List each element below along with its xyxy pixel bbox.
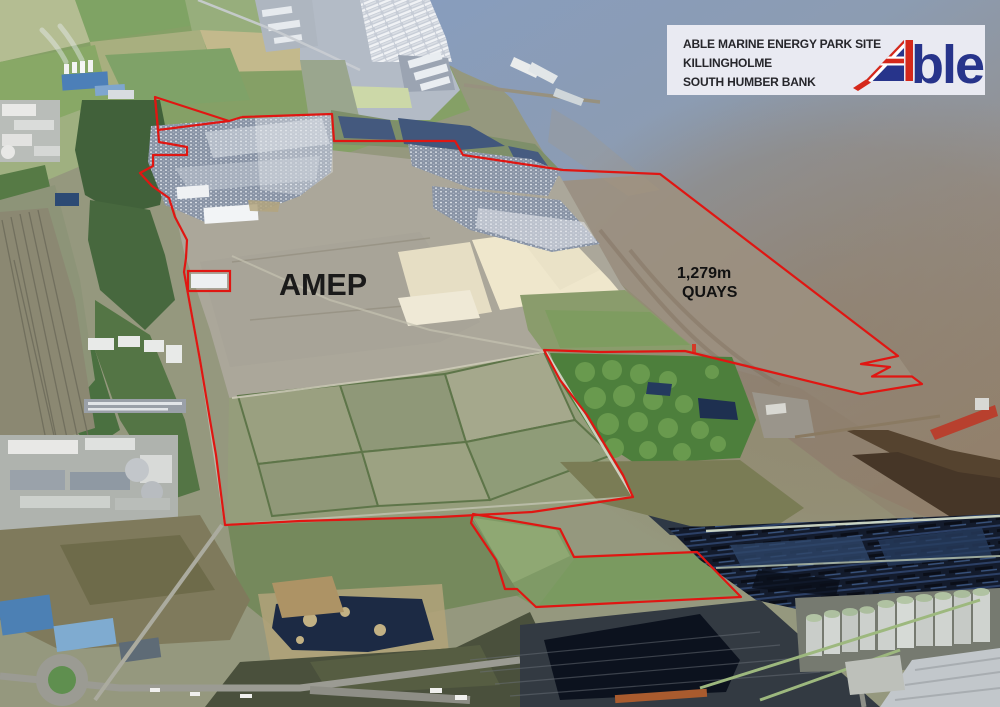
svg-text:1,279m: 1,279m bbox=[677, 265, 731, 282]
svg-text:SOUTH HUMBER BANK: SOUTH HUMBER BANK bbox=[683, 75, 816, 89]
svg-text:AMEP: AMEP bbox=[279, 268, 367, 302]
svg-text:QUAYS: QUAYS bbox=[682, 284, 738, 301]
svg-text:ble: ble bbox=[911, 35, 984, 95]
svg-text:ABLE MARINE ENERGY PARK SITE: ABLE MARINE ENERGY PARK SITE bbox=[683, 37, 881, 51]
svg-text:KILLINGHOLME: KILLINGHOLME bbox=[683, 56, 772, 70]
